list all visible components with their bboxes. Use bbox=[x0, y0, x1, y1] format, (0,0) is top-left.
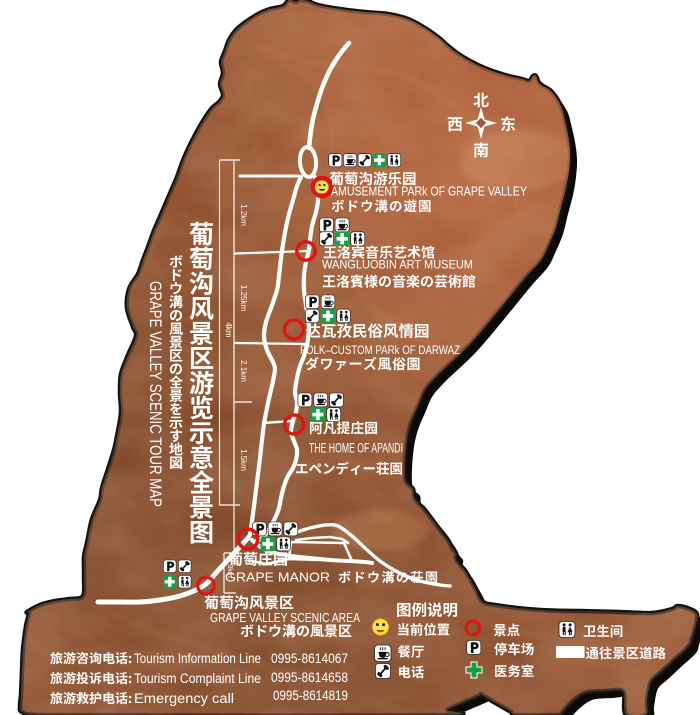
svg-text:4km: 4km bbox=[224, 322, 233, 337]
svg-text:AMUSEMENT PARk OF GRAPE VALLEY: AMUSEMENT PARk OF GRAPE VALLEY bbox=[331, 184, 527, 199]
svg-text:WANGLUOBIN ART MUSEUM: WANGLUOBIN ART MUSEUM bbox=[322, 258, 473, 272]
svg-text:THE HOME OF APANDI: THE HOME OF APANDI bbox=[309, 441, 403, 456]
svg-text:1.2km: 1.2km bbox=[239, 204, 248, 226]
svg-text:0995-8614067: 0995-8614067 bbox=[271, 651, 348, 666]
svg-text:FOLK–CUSTOM PARk OF DARWAZ: FOLK–CUSTOM PARk OF DARWAZ bbox=[300, 343, 460, 357]
svg-text:Tourism Information Line: Tourism Information Line bbox=[134, 651, 261, 666]
svg-text:Emergency call: Emergency call bbox=[134, 691, 234, 706]
svg-text:GRAPE VALLEY SCENIC TOUR M: GRAPE VALLEY SCENIC TOUR MAP bbox=[146, 281, 165, 507]
svg-text:1.5km: 1.5km bbox=[239, 449, 248, 471]
svg-text:Tourism Complaint Line: Tourism Complaint Line bbox=[134, 671, 261, 686]
svg-text:GRAPE MANOR: GRAPE MANOR bbox=[225, 570, 330, 585]
svg-text:2.1km: 2.1km bbox=[239, 360, 248, 382]
svg-text:0995-8614819: 0995-8614819 bbox=[273, 688, 348, 703]
svg-text:0995-8614658: 0995-8614658 bbox=[271, 670, 348, 685]
svg-text:1.25km: 1.25km bbox=[239, 285, 248, 312]
svg-text:GRAPE VALLEY SCENIC AREA: GRAPE VALLEY SCENIC AREA bbox=[210, 610, 360, 625]
